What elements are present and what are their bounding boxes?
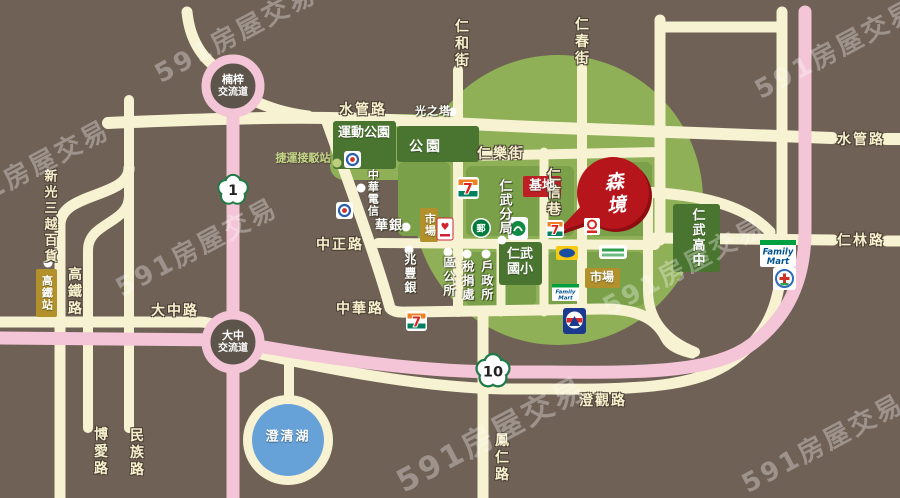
park-box	[397, 126, 479, 162]
hsr-station-box	[36, 269, 57, 317]
px-mart-icon	[556, 246, 578, 260]
clinic-icon	[773, 267, 796, 290]
high-school-box	[673, 204, 720, 272]
svg-text:Mart: Mart	[767, 257, 790, 267]
gas-station-icon	[563, 308, 586, 334]
green-sign-icon	[599, 245, 627, 259]
mega-bank-dot	[405, 246, 414, 255]
huanan-bank-dot	[402, 223, 411, 232]
sports-park-box	[333, 121, 396, 169]
light-tower-dot	[448, 108, 457, 117]
green-bank-icon	[508, 217, 528, 240]
dazhong-interchange	[206, 315, 260, 369]
seven-eleven-icon: 7	[546, 220, 564, 238]
svg-text:Mart: Mart	[558, 296, 573, 302]
shinkong-dot	[44, 259, 53, 268]
family-mart-icon: Family Mart	[552, 284, 579, 302]
heart-store-icon: ♥	[437, 218, 453, 240]
location-map: 1 10 7 7 7 郵	[0, 0, 900, 498]
svg-text:郵: 郵	[476, 223, 485, 235]
family-mart-icon: Family Mart	[760, 240, 796, 267]
post-office-icon: 郵	[471, 218, 491, 238]
red-store-icon	[584, 218, 600, 235]
svg-text:7: 7	[412, 316, 421, 331]
map-canvas: 1 10 7 7 7 郵	[0, 0, 900, 498]
nanzi-interchange	[206, 59, 260, 113]
svg-text:7: 7	[551, 223, 559, 237]
highway-west	[0, 338, 230, 340]
household-office-dot	[482, 250, 491, 259]
site-box	[523, 176, 561, 197]
bank-logo-icon	[336, 202, 353, 219]
district-office-dot	[444, 248, 453, 257]
svg-text:♥: ♥	[441, 222, 450, 233]
cht-dot	[357, 184, 366, 193]
svg-text:Family: Family	[763, 248, 794, 258]
chengcing-lake	[243, 395, 333, 485]
shield-1-number: 1	[228, 183, 238, 199]
svg-text:7: 7	[463, 182, 473, 198]
police-dot	[498, 236, 507, 245]
seven-eleven-icon: 7	[406, 311, 427, 331]
mrt-shuttle-dot	[333, 159, 342, 168]
tax-office-dot	[463, 250, 472, 259]
elementary-box	[499, 242, 542, 285]
shield-10-number: 10	[483, 364, 503, 381]
seven-eleven-icon: 7	[457, 177, 479, 199]
market-east-box	[585, 268, 620, 288]
market-west-box	[420, 208, 438, 242]
bank-logo-icon	[344, 151, 361, 168]
